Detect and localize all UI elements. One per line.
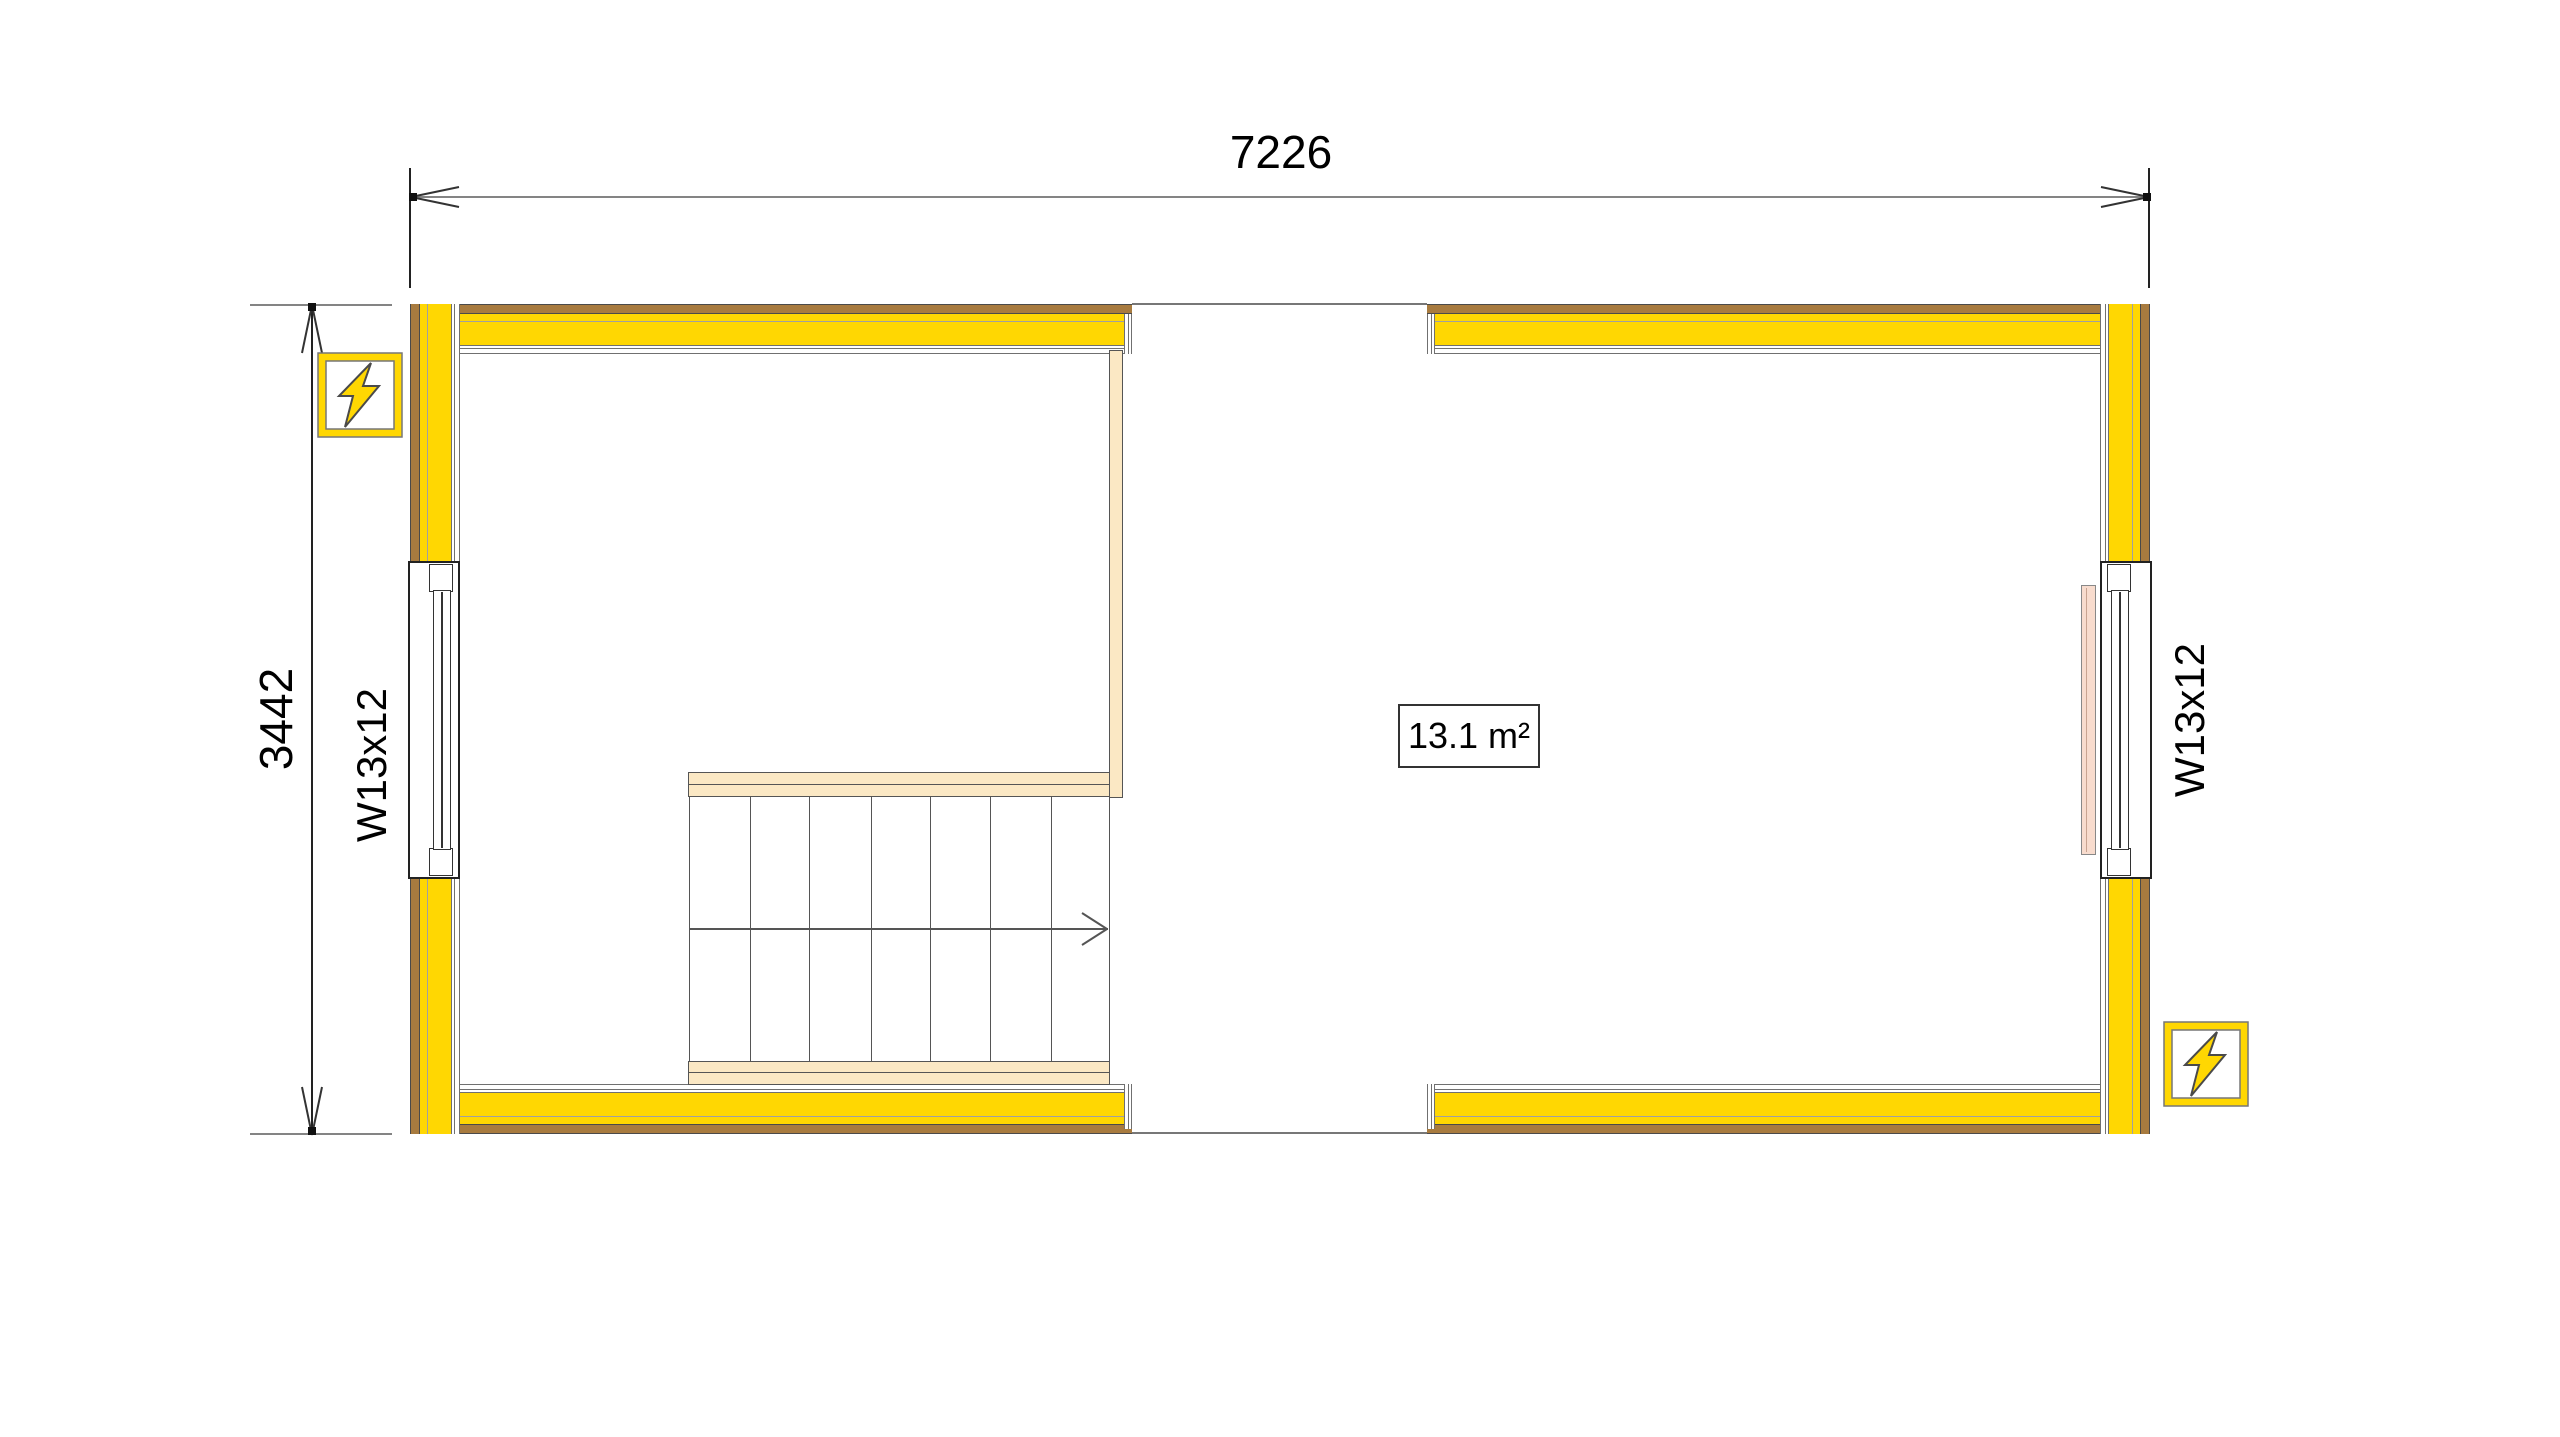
right-room-wall-bottom-endcap — [1427, 1084, 1435, 1129]
stair-direction-arrow-icon — [1080, 911, 1110, 947]
stair-stringer-bottom-line — [689, 1072, 1109, 1073]
stair-opening-post — [1109, 350, 1123, 798]
left-room-wall-left-lower — [410, 878, 460, 1134]
right-room-wall-top — [1427, 304, 2150, 354]
left-dimension-value: 3442 — [250, 619, 302, 819]
dimension-arrow-left-icon — [409, 181, 465, 213]
left-room-wall-left-upper — [410, 304, 460, 562]
floor-edge-top-middle — [1132, 303, 1427, 305]
left-room-wall-top — [410, 304, 1132, 354]
stair-stringer-top — [688, 772, 1110, 797]
left-window-frame-sill — [429, 848, 453, 876]
dimension-arrow-up-icon — [296, 303, 328, 359]
left-room-wall-top-endcap — [1124, 314, 1132, 354]
left-dimension-line — [311, 305, 313, 1135]
room-area-value: 13.1 m² — [1408, 715, 1530, 756]
top-dimension-value: 7226 — [1181, 126, 1381, 178]
right-window-frame-head — [2107, 564, 2131, 592]
stair-stringer-top-line — [689, 784, 1109, 785]
right-window-sill-board — [2081, 585, 2096, 855]
right-room-wall-right-upper — [2100, 304, 2150, 562]
floor-plan-canvas: 7226 3442 W13x12 W13x12 — [0, 0, 2560, 1437]
right-window-label: W13x12 — [2167, 600, 2213, 840]
dimension-arrow-down-icon — [296, 1081, 328, 1137]
right-room-wall-right-lower — [2100, 878, 2150, 1134]
left-room-wall-bottom-endcap — [1124, 1084, 1132, 1129]
left-room-wall-bottom — [410, 1084, 1132, 1134]
stair-walk-line — [690, 928, 1108, 930]
left-window-label: W13x12 — [349, 645, 395, 885]
electrical-symbol-top-left — [317, 352, 403, 438]
floor-edge-bottom-middle — [1132, 1132, 1427, 1134]
stair-stringer-bottom — [688, 1061, 1110, 1085]
sill-board-line — [2086, 588, 2087, 852]
right-room-wall-top-endcap — [1427, 314, 1435, 354]
top-dimension-line — [411, 196, 2149, 198]
electrical-symbol-bottom-right — [2163, 1021, 2249, 1107]
left-window-glazing-line — [441, 592, 443, 848]
room-area-label-box: 13.1 m² — [1398, 704, 1540, 768]
right-room-wall-bottom — [1427, 1084, 2150, 1134]
dimension-arrow-right-icon — [2095, 181, 2151, 213]
right-window-glazing-line — [2119, 592, 2121, 848]
left-window-frame-head — [429, 564, 453, 592]
right-window-frame-sill — [2107, 848, 2131, 876]
